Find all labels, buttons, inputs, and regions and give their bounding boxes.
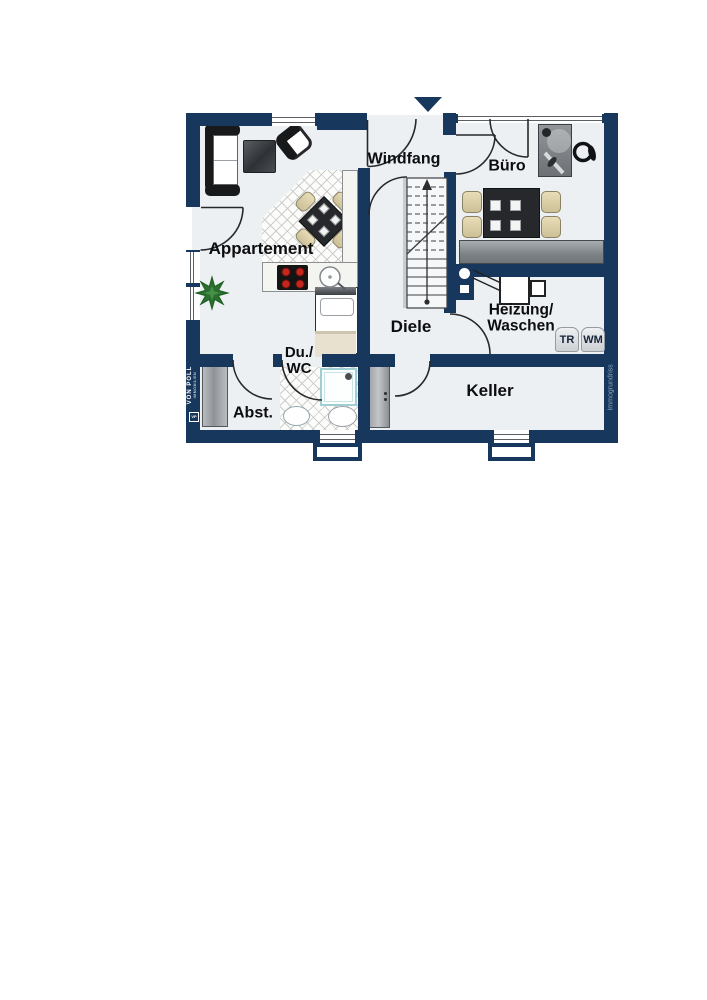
chair [541,191,561,213]
room-label-abstellraum: Abst. [233,406,273,423]
wall-inner-horizontal [430,354,618,367]
window-divider [186,283,200,287]
shower-drain-icon [345,373,352,380]
room-label-heizung-waschen: Heizung/ Waschen [487,303,554,336]
room-label-keller: Keller [466,382,513,400]
window [270,113,317,126]
wall-segment [317,113,367,130]
room-label-diele: Diele [391,318,432,336]
brand-left-sub: IMMOBILIEN [193,353,197,417]
coffee-table [243,140,276,173]
toilet [328,406,357,427]
door-handle-icon [384,392,387,395]
room-label-heizung-line1: Heizung/ [487,303,554,319]
chair [541,216,561,238]
cellar-door-panel [367,358,390,428]
washer-unit: WM [581,327,605,352]
room-label-du-wc: Du./ WC [285,345,313,377]
wall-inner-horizontal [322,354,370,367]
wall-left-upper [186,113,200,207]
room-label-du-line1: Du./ [285,345,313,361]
wall-inner-vertical [358,168,370,430]
basement-window-well [313,443,362,461]
chair [462,191,482,213]
dryer-label: TR [560,334,575,346]
place-setting [490,200,501,211]
brand-right-credit: Immogrundriss [608,353,615,423]
wall-bottom [531,430,618,443]
room-label-buero: Büro [488,159,525,176]
wall-bottom [186,430,318,443]
washer-label: WM [583,334,603,346]
dryer-unit: TR [555,327,579,352]
desk [538,124,572,177]
brand-left: VON POLL IMMOBILIEN [187,353,197,417]
sofa-armrest [205,184,240,196]
room-label-appartement: Appartement [209,240,314,258]
wall-inner-vertical [444,277,456,313]
wardrobe-cabinet [202,366,228,427]
sideboard [459,240,604,264]
wall-inner-vertical [444,172,456,264]
door-handle-icon [384,398,387,401]
wall-segment [443,113,456,135]
heater-valve-icon [459,268,470,279]
stove-icon [277,265,308,290]
floor-plan: TR WM [0,0,707,1000]
room-label-windfang: Windfang [368,152,441,169]
shower [320,368,357,406]
kitchen-counter [342,170,358,264]
heater-valve-icon [460,285,469,293]
room-label-heizung-line2: Waschen [487,319,554,335]
window-glazing [456,114,604,123]
place-setting [490,220,501,231]
meeting-table [483,188,540,238]
desk-lamp-icon [542,128,551,137]
brand-left-logo: VP [189,412,199,422]
bathroom-sink [283,406,310,426]
boiler-unit-small [530,280,546,297]
bed [315,287,358,354]
entrance-arrow-icon [414,97,442,112]
bed-headboard [315,287,356,295]
basement-window [318,430,357,443]
chair [462,216,482,238]
place-setting [510,200,521,211]
wall-inner-horizontal [367,354,395,367]
basement-window-well [488,443,535,461]
sofa-cushions [213,135,238,185]
wall-segment [190,113,270,126]
place-setting [510,220,521,231]
wall-bottom [357,430,492,443]
room-label-du-line2: WC [285,361,313,377]
basement-window [492,430,531,443]
bed-pillow [320,298,354,316]
wall-inner-horizontal [273,354,282,367]
